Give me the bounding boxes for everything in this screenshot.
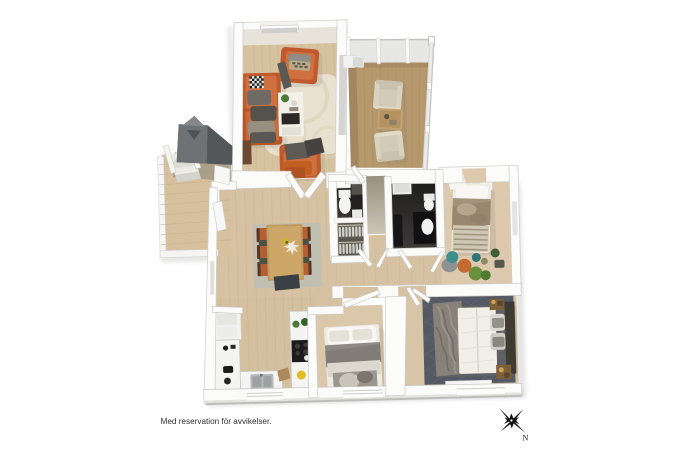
svg-text:N: N [523,434,529,443]
svg-text:Med reservation för avvikelser: Med reservation för avvikelser. [161,417,272,426]
